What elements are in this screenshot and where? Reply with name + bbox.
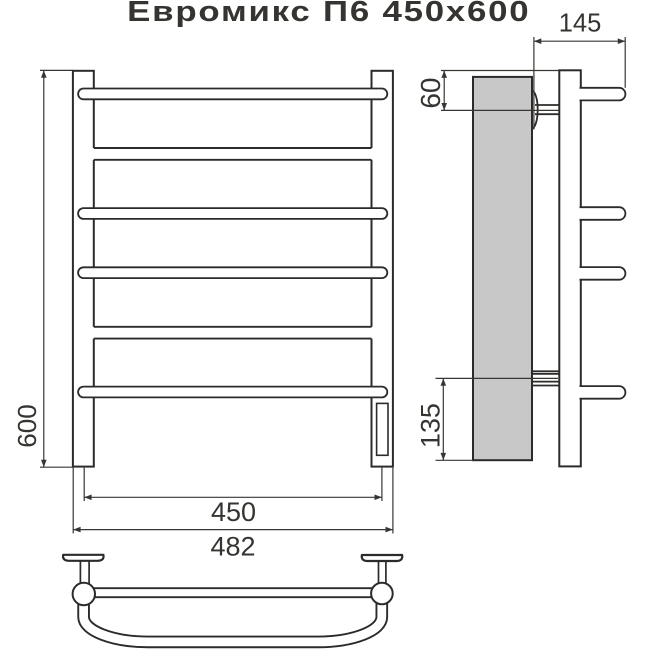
svg-text:145: 145	[559, 10, 602, 38]
svg-text:135: 135	[416, 403, 446, 448]
svg-text:482: 482	[210, 531, 255, 561]
svg-text:450: 450	[211, 497, 256, 527]
svg-text:60: 60	[415, 78, 446, 109]
svg-text:Евромикс П6 450x600: Евромикс П6 450x600	[127, 0, 530, 27]
svg-text:600: 600	[12, 404, 42, 447]
